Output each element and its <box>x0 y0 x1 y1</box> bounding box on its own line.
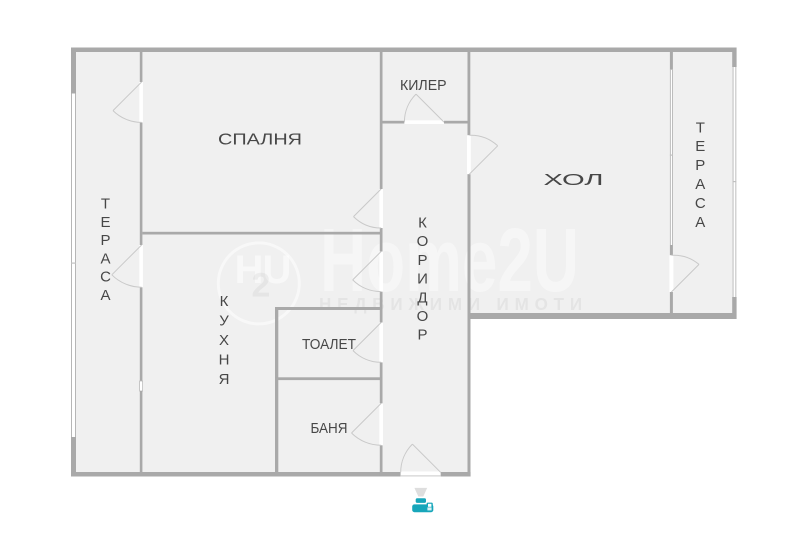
svg-text:ТОАЛЕТ: ТОАЛЕТ <box>302 336 356 353</box>
svg-text:Р: Р <box>100 232 110 249</box>
svg-text:БАНЯ: БАНЯ <box>311 420 348 437</box>
svg-text:С: С <box>100 269 111 286</box>
svg-text:2: 2 <box>252 266 271 304</box>
svg-text:Т: Т <box>696 119 705 136</box>
svg-text:Р: Р <box>417 327 427 344</box>
svg-text:У: У <box>219 313 229 330</box>
svg-text:ХОЛ: ХОЛ <box>544 172 604 189</box>
svg-text:Х: Х <box>219 332 229 349</box>
svg-text:Т: Т <box>101 196 110 213</box>
svg-text:Р: Р <box>695 157 705 174</box>
svg-text:Д: Д <box>417 289 427 306</box>
svg-text:КИЛЕР: КИЛЕР <box>400 77 447 94</box>
svg-text:К: К <box>418 215 427 232</box>
svg-text:Р: Р <box>417 252 427 269</box>
svg-text:К: К <box>220 293 229 310</box>
svg-text:Н: Н <box>219 351 230 368</box>
svg-text:И: И <box>417 271 428 288</box>
svg-text:СПАЛНЯ: СПАЛНЯ <box>218 132 302 149</box>
svg-text:С: С <box>695 195 706 212</box>
svg-text:А: А <box>695 214 705 231</box>
svg-text:Е: Е <box>100 214 110 231</box>
svg-text:А: А <box>695 176 705 193</box>
svg-text:Я: Я <box>219 371 230 388</box>
svg-text:А: А <box>100 287 110 304</box>
svg-text:А: А <box>100 250 110 267</box>
svg-text:Е: Е <box>695 138 705 155</box>
svg-text:О: О <box>417 308 429 325</box>
svg-text:О: О <box>417 233 429 250</box>
svg-text:НЕДВИЖИМИ ИМОТИ: НЕДВИЖИМИ ИМОТИ <box>319 294 588 314</box>
